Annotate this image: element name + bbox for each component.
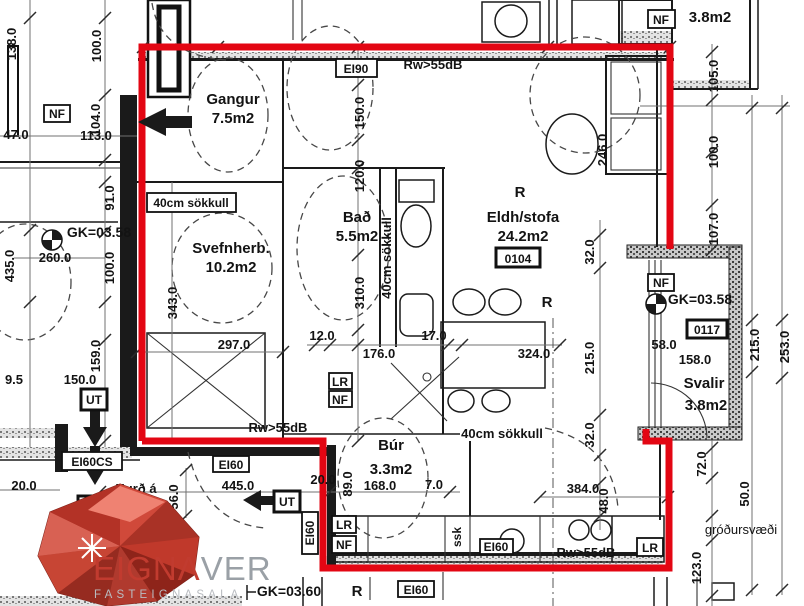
dim: 123.0 <box>689 552 704 585</box>
entry-arrow-left-icon <box>138 108 192 136</box>
dim: 72.0 <box>694 451 709 476</box>
floor-plan-page: NF EI90 40cm sökkull LR NF EI60CS UT UT <box>0 0 804 606</box>
unit-number-0117: 0117 <box>687 320 727 338</box>
vent-r-label: R <box>515 184 526 201</box>
sound-rating-label: Rw>55dB <box>557 545 616 560</box>
level-marker-right <box>646 294 666 314</box>
dim: 113.0 <box>80 128 112 143</box>
room-gangur-area: 7.5m2 <box>212 110 255 127</box>
dim: 310.0 <box>352 277 367 310</box>
dim: 215.0 <box>582 342 597 375</box>
room-bur-name: Búr <box>378 437 404 454</box>
burner <box>591 520 611 540</box>
dim: 100.0 <box>102 252 117 285</box>
nf-label: NF <box>49 107 65 121</box>
logo-text-primary: EIGNΛ <box>93 550 201 587</box>
room-nf-area: 3.8m2 <box>689 9 732 26</box>
dim: 120.0 <box>352 160 367 193</box>
dim: 91.0 <box>102 185 117 210</box>
dim: 297.0 <box>218 337 251 352</box>
dim: 58.0 <box>651 337 676 352</box>
dim: 260.0 <box>39 250 72 265</box>
nf-label: NF <box>332 393 348 407</box>
room-svalir-area: 3.8m2 <box>685 397 728 414</box>
dim: 176.0 <box>363 346 396 361</box>
ei60cs-tag: EI60CS <box>62 452 122 470</box>
ei60-label: EI60 <box>219 458 244 472</box>
ei90-tag: EI90 <box>336 59 377 77</box>
room-bur-area: 3.3m2 <box>370 461 413 478</box>
logo-text-secondary: VER <box>201 550 272 587</box>
lr-nf-tags-bath: LR NF <box>329 373 352 407</box>
ssk-label: ssk <box>450 527 464 547</box>
toilet <box>399 180 434 247</box>
sound-rating-label: Rw>55dB <box>249 420 308 435</box>
sokkull-label-vertical: 40cm sökkull <box>379 217 394 299</box>
sokkull-tag-boxed: 40cm sökkull <box>147 193 236 212</box>
ei60-tag-1: EI60 <box>213 456 249 472</box>
dim: 17.0 <box>421 328 446 343</box>
floor-plan-svg: NF EI90 40cm sökkull LR NF EI60CS UT UT <box>0 0 804 606</box>
dim: 343.0 <box>165 287 180 320</box>
nf-tag-topright: NF <box>648 10 675 28</box>
garden-label: gróðursvæði <box>705 522 777 537</box>
ei60-tag-vertical: EI60 <box>302 512 318 554</box>
dim: 253.0 <box>777 331 792 364</box>
room-bad-name: Bað <box>343 209 371 226</box>
ei60cs-label: EI60CS <box>71 455 112 469</box>
dim: 7.0 <box>425 477 443 492</box>
dim: 107.0 <box>706 213 721 246</box>
ut-tag-3: UT <box>274 491 300 512</box>
lr-label: LR <box>642 541 658 555</box>
room-gangur-name: Gangur <box>206 91 259 108</box>
lr-tag-right: LR <box>637 538 663 556</box>
sokkull-label: 40cm sökkull <box>461 426 543 441</box>
burner <box>569 520 589 540</box>
unit-0117-label: 0117 <box>694 323 720 337</box>
dim: 168.0 <box>364 478 397 493</box>
nf-label: NF <box>336 538 352 552</box>
ei90-label: EI90 <box>344 62 369 76</box>
dim: 100.0 <box>89 30 104 63</box>
nf-tag-topleft: NF <box>44 105 70 122</box>
dim: 20.0 <box>11 478 36 493</box>
ut-tag-1: UT <box>81 389 107 410</box>
dim: 89.0 <box>340 471 355 496</box>
dim: 20.0 <box>310 472 335 487</box>
unit-number-0104: 0104 <box>496 248 540 267</box>
nf-label: NF <box>653 276 669 290</box>
dim: 215.0 <box>747 329 762 362</box>
dim: 50.0 <box>737 481 752 506</box>
room-eldhus-area: 24.2m2 <box>498 228 549 245</box>
vent-r-label: R <box>352 583 363 600</box>
unit-0104-label: 0104 <box>505 252 532 266</box>
level-right-label: GK=03.58 <box>668 291 732 307</box>
ei60-tag-2: EI60 <box>398 581 434 597</box>
ut-label: UT <box>279 495 296 509</box>
down-arrow-icon <box>83 408 107 447</box>
dim: 12.0 <box>309 328 334 343</box>
dim: 138.0 <box>4 28 19 61</box>
dim: 324.0 <box>518 346 551 361</box>
vent-r-label: R <box>542 294 553 311</box>
dim: 105.0 <box>706 60 721 93</box>
dim: 246.0 <box>595 134 610 167</box>
sound-rating-label: Rw>55dB <box>404 57 463 72</box>
room-svalir-name: Svalir <box>684 375 725 392</box>
logo-wordmark: EIGNΛVER <box>93 550 272 587</box>
ei60-label: EI60 <box>404 583 429 597</box>
exit-arrow-left-icon <box>243 490 277 511</box>
dim: 445.0 <box>222 478 255 493</box>
level-marker-left <box>42 230 62 250</box>
room-bad-area: 5.5m2 <box>336 228 379 245</box>
room-svefnherb-area: 10.2m2 <box>206 259 257 276</box>
dim: 47.0 <box>3 127 28 142</box>
dim: 32.0 <box>582 422 597 447</box>
dim: 159.0 <box>88 340 103 373</box>
dim: 435.0 <box>2 250 17 283</box>
ei60-label: EI60 <box>303 520 317 545</box>
room-svefnherb-name: Svefnherb. <box>192 240 270 257</box>
ut-label: UT <box>86 393 103 407</box>
dim: 32.0 <box>582 239 597 264</box>
dim: 158.0 <box>679 352 712 367</box>
dim: 100.0 <box>706 136 721 169</box>
dim: 150.0 <box>352 97 367 130</box>
logo-tagline: FASTEIGNASALA <box>94 589 243 601</box>
ei60-tag-3: EI60 <box>480 539 513 554</box>
lr-label: LR <box>336 518 352 532</box>
nf-tag-right: NF <box>648 274 674 291</box>
ei60-label: EI60 <box>484 540 509 554</box>
top-table <box>482 0 622 44</box>
dim: 150.0 <box>64 372 97 387</box>
lr-label: LR <box>332 375 348 389</box>
level-left-label: GK=03.58 <box>67 224 131 240</box>
agency-logo: EIGNΛVER FASTEIGNASALA <box>38 484 272 606</box>
shower-drain <box>391 357 459 421</box>
nf-label: NF <box>653 13 669 27</box>
sokkull-label: 40cm sökkull <box>153 196 228 210</box>
room-eldhus-name: Eldh/stofa <box>487 209 560 226</box>
dim: 9.5 <box>5 372 23 387</box>
dim: 384.0 <box>567 481 600 496</box>
